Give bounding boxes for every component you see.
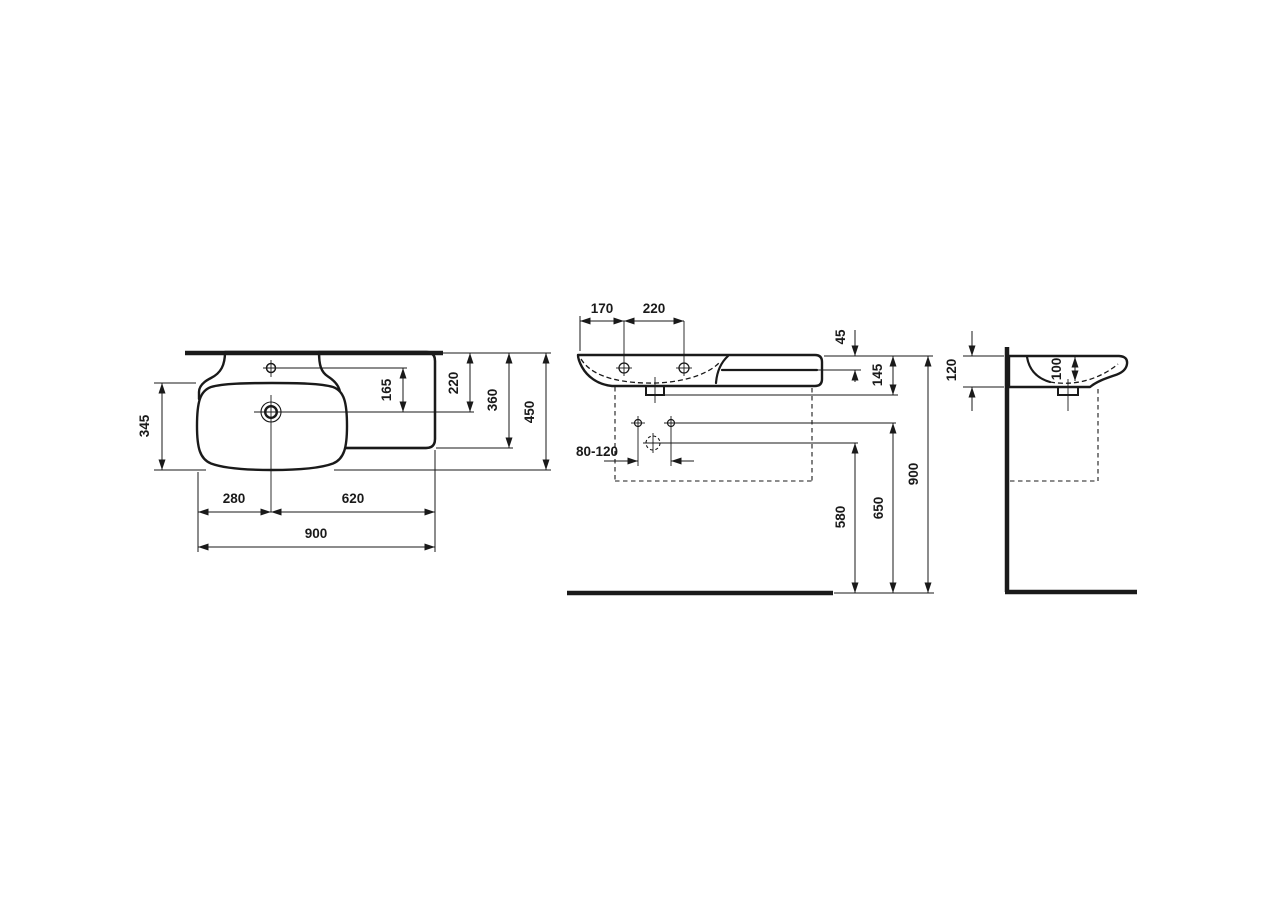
front-view: 170 220 45 145 80-120 580 650 900 <box>567 301 934 593</box>
dim-label-back-height: 120 <box>944 359 959 382</box>
washbasin-drawing: 345 165 220 360 450 280 620 900 <box>0 0 1280 900</box>
dim-label-overall-width: 900 <box>305 526 328 541</box>
dim-label-shelf-thickness: 45 <box>833 329 848 345</box>
waste-pipe-icon <box>643 433 858 453</box>
dim-label-shelf-depth: 360 <box>485 389 500 412</box>
dim-label-bowl-depth: 345 <box>137 414 152 437</box>
dim-label-supply-spacing: 80-120 <box>576 444 618 459</box>
fixing-hole-left-icon <box>616 321 632 376</box>
dim-label-drain-to-right: 620 <box>342 491 365 506</box>
dim-label-drain-from-left: 280 <box>223 491 246 506</box>
dim-label-tap-to-drain: 165 <box>379 378 394 401</box>
dim-label-bowl-inner-depth: 100 <box>1049 358 1064 381</box>
dim-label-overall-depth: 450 <box>522 401 537 424</box>
dim-label-drain-from-wall: 220 <box>446 372 461 395</box>
dim-label-supply-height: 650 <box>871 497 886 520</box>
supply-connection-right-icon <box>664 416 896 466</box>
dim-label-trap-outlet-height: 580 <box>833 506 848 529</box>
fixing-hole-right-icon <box>676 321 692 376</box>
dim-label-front-height: 145 <box>870 363 885 386</box>
plan-view: 345 165 220 360 450 280 620 900 <box>137 352 551 552</box>
side-view: 120 100 <box>944 331 1137 592</box>
supply-connection-left-icon <box>631 416 645 466</box>
plan-bowl-outline <box>197 383 347 470</box>
dim-label-rim-height: 900 <box>906 463 921 486</box>
technical-drawing-page: 345 165 220 360 450 280 620 900 <box>0 0 1280 900</box>
dim-label-edge-to-hole: 170 <box>591 301 614 316</box>
dim-label-hole-spacing: 220 <box>643 301 666 316</box>
